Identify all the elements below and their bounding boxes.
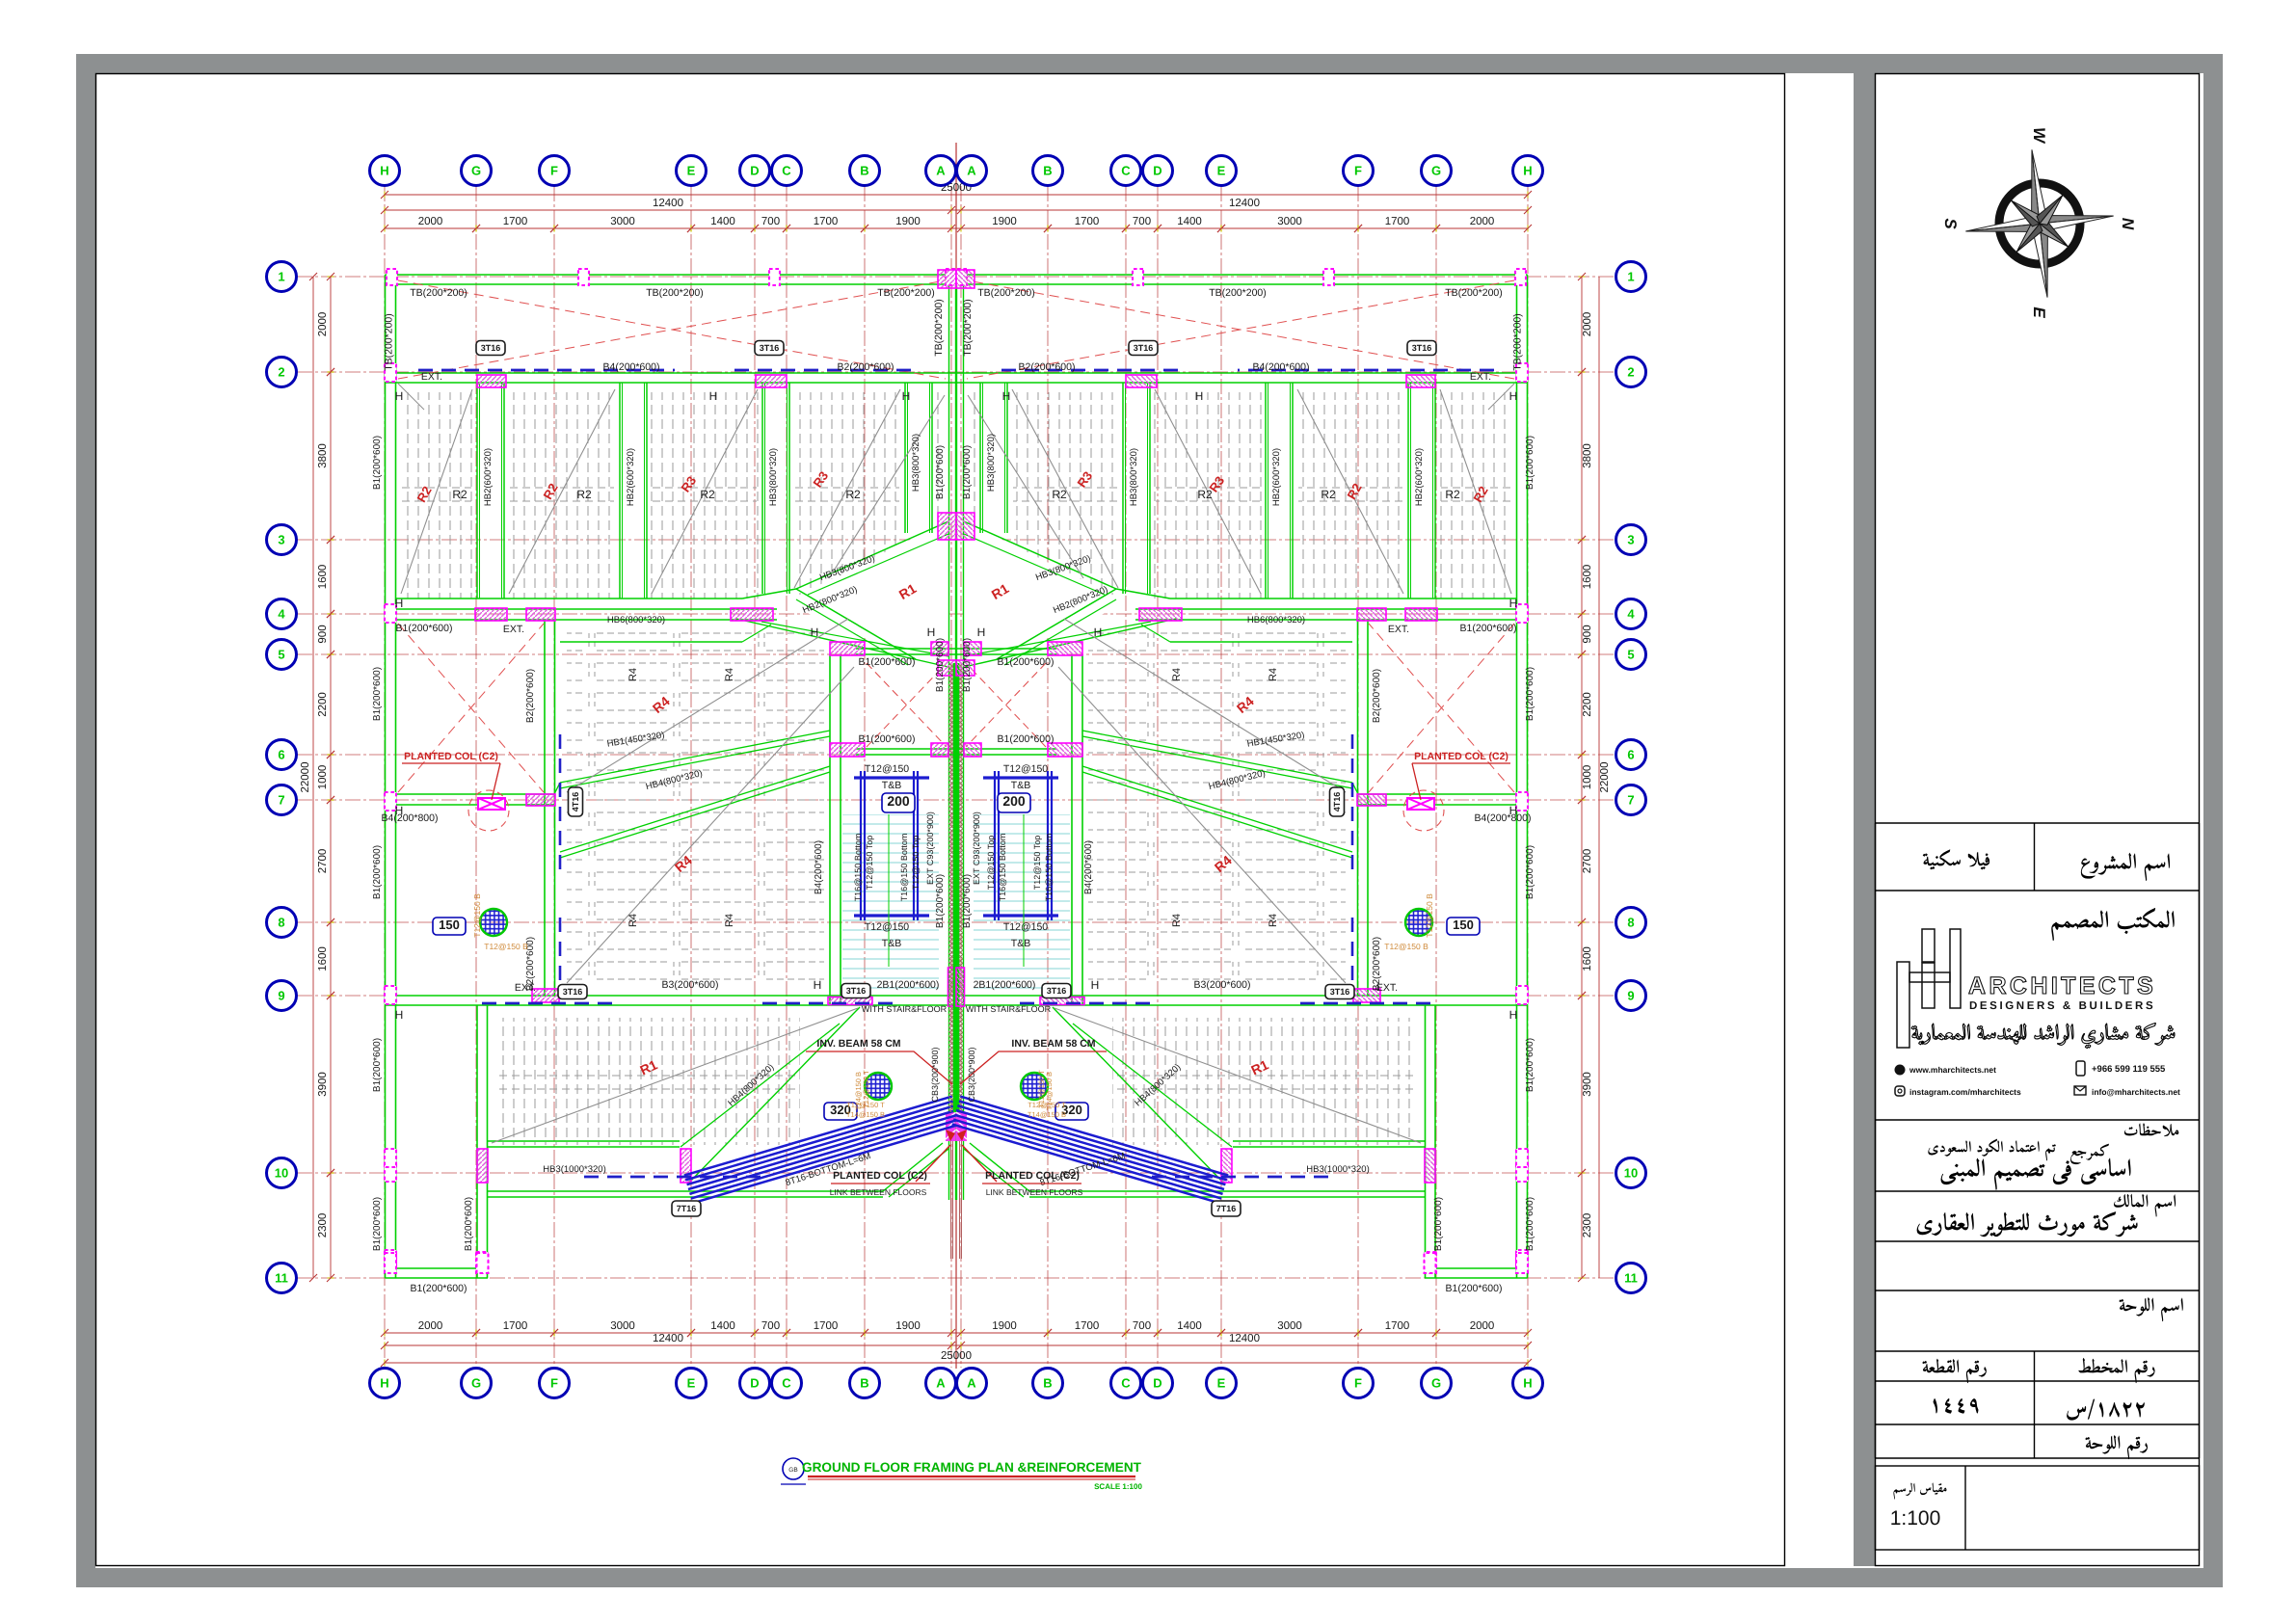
svg-text:B1(200*600): B1(200*600) bbox=[372, 1038, 383, 1092]
svg-text:B2(200*600): B2(200*600) bbox=[838, 361, 894, 373]
svg-text:1600: 1600 bbox=[317, 565, 329, 590]
svg-text:H: H bbox=[395, 804, 404, 817]
svg-text:R4: R4 bbox=[1171, 914, 1183, 927]
svg-text:H: H bbox=[395, 597, 404, 610]
svg-text:EXT.: EXT. bbox=[1376, 982, 1398, 994]
svg-text:3000: 3000 bbox=[610, 216, 635, 227]
svg-text:B1(200*600): B1(200*600) bbox=[1525, 1197, 1535, 1251]
svg-text:1:100: 1:100 bbox=[1890, 1507, 1941, 1530]
svg-text:1900: 1900 bbox=[992, 1320, 1017, 1332]
svg-text:700: 700 bbox=[1133, 216, 1151, 227]
svg-text:T12@150 Top: T12@150 Top bbox=[986, 836, 996, 891]
svg-text:B1(200*600): B1(200*600) bbox=[962, 638, 973, 692]
svg-text:C: C bbox=[782, 1376, 791, 1391]
svg-text:1000: 1000 bbox=[1582, 765, 1593, 790]
svg-text:1600: 1600 bbox=[1582, 946, 1593, 971]
svg-text:E: E bbox=[687, 164, 696, 178]
svg-text:H: H bbox=[1094, 625, 1103, 639]
svg-text:2200: 2200 bbox=[1582, 692, 1593, 717]
svg-text:F: F bbox=[1354, 1376, 1362, 1391]
svg-text:B2(200*600): B2(200*600) bbox=[1019, 361, 1076, 373]
svg-text:B1(200*600): B1(200*600) bbox=[372, 1197, 383, 1251]
svg-text:B2(200*600): B2(200*600) bbox=[525, 669, 536, 723]
svg-text:R4: R4 bbox=[724, 914, 735, 927]
svg-text:2700: 2700 bbox=[1582, 849, 1593, 874]
svg-text:B1(200*600): B1(200*600) bbox=[1460, 623, 1517, 634]
svg-text:C: C bbox=[782, 164, 791, 178]
svg-text:CB3(200*900): CB3(200*900) bbox=[930, 1047, 940, 1102]
svg-text:4T16: 4T16 bbox=[571, 792, 580, 812]
svg-text:1400: 1400 bbox=[1177, 1320, 1202, 1332]
svg-text:22000: 22000 bbox=[1599, 762, 1611, 793]
svg-text:B1(200*600): B1(200*600) bbox=[935, 874, 946, 928]
svg-text:T12@150: T12@150 bbox=[865, 763, 909, 775]
svg-text:700: 700 bbox=[761, 1320, 780, 1332]
svg-text:EXT C93(200*900): EXT C93(200*900) bbox=[925, 811, 935, 885]
svg-text:F: F bbox=[550, 164, 558, 178]
svg-text:B2(200*600): B2(200*600) bbox=[1372, 669, 1382, 723]
svg-text:G: G bbox=[1431, 164, 1441, 178]
svg-text:1700: 1700 bbox=[814, 216, 839, 227]
svg-text:B4(200*600): B4(200*600) bbox=[603, 361, 660, 373]
svg-text:+966 599 119 555: +966 599 119 555 bbox=[2092, 1064, 2166, 1075]
svg-text:2300: 2300 bbox=[1582, 1213, 1593, 1238]
svg-text:B4(200*600): B4(200*600) bbox=[1083, 840, 1094, 894]
svg-text:1700: 1700 bbox=[503, 216, 528, 227]
svg-text:1600: 1600 bbox=[1582, 565, 1593, 590]
svg-text:H: H bbox=[1509, 597, 1518, 610]
svg-text:CB3(200*900): CB3(200*900) bbox=[967, 1047, 976, 1102]
svg-text:DESIGNERS & BUILDERS: DESIGNERS & BUILDERS bbox=[1969, 1000, 2155, 1012]
svg-text:LINK BETWEEN FLOORS: LINK BETWEEN FLOORS bbox=[830, 1187, 927, 1197]
svg-text:H: H bbox=[1002, 389, 1011, 403]
svg-text:HB6(800*320): HB6(800*320) bbox=[607, 615, 665, 625]
svg-text:HB3(800*320): HB3(800*320) bbox=[1129, 448, 1139, 506]
svg-text:D: D bbox=[1153, 1376, 1161, 1391]
svg-text:3T16: 3T16 bbox=[563, 987, 583, 997]
svg-text:2B1(200*600): 2B1(200*600) bbox=[974, 979, 1036, 991]
svg-text:1000: 1000 bbox=[317, 765, 329, 790]
svg-text:B1(200*600): B1(200*600) bbox=[411, 1283, 467, 1294]
svg-text:E: E bbox=[2030, 306, 2048, 318]
svg-text:B1(200*600): B1(200*600) bbox=[464, 1197, 474, 1251]
svg-text:8: 8 bbox=[278, 916, 284, 930]
svg-text:R4: R4 bbox=[1268, 914, 1279, 927]
svg-text:A: A bbox=[936, 164, 946, 178]
svg-text:H: H bbox=[1091, 978, 1100, 992]
svg-text:H: H bbox=[814, 978, 822, 992]
svg-text:H: H bbox=[1509, 1008, 1518, 1022]
svg-text:B4(200*600): B4(200*600) bbox=[1253, 361, 1310, 373]
svg-text:E: E bbox=[1217, 1376, 1226, 1391]
svg-text:TB(200*200): TB(200*200) bbox=[877, 287, 935, 299]
svg-text:150: 150 bbox=[439, 918, 460, 932]
svg-text:R2: R2 bbox=[1321, 488, 1336, 501]
svg-text:B3(200*600): B3(200*600) bbox=[1194, 979, 1251, 991]
svg-text:H: H bbox=[1195, 389, 1204, 403]
svg-text:2200: 2200 bbox=[317, 692, 329, 717]
svg-text:22000: 22000 bbox=[300, 762, 311, 793]
svg-text:1700: 1700 bbox=[814, 1320, 839, 1332]
svg-text:700: 700 bbox=[1133, 1320, 1151, 1332]
svg-text:H: H bbox=[1509, 389, 1518, 403]
svg-text:B1(200*600): B1(200*600) bbox=[859, 656, 916, 668]
svg-text:200: 200 bbox=[887, 793, 910, 809]
svg-text:1900: 1900 bbox=[992, 216, 1017, 227]
svg-text:T12@150 B: T12@150 B bbox=[1384, 942, 1428, 951]
svg-text:TB(200*200): TB(200*200) bbox=[410, 287, 467, 299]
svg-text:TB(200*200): TB(200*200) bbox=[977, 287, 1035, 299]
svg-text:B1(200*600): B1(200*600) bbox=[1525, 845, 1535, 899]
svg-text:S: S bbox=[1941, 218, 1960, 229]
svg-text:1900: 1900 bbox=[895, 1320, 921, 1332]
svg-text:EXT.: EXT. bbox=[1388, 624, 1409, 635]
svg-text:R4: R4 bbox=[627, 668, 639, 681]
svg-text:TB(200*200): TB(200*200) bbox=[1445, 287, 1503, 299]
svg-text:3T16: 3T16 bbox=[1134, 343, 1154, 353]
svg-text:INV. BEAM 58 CM: INV. BEAM 58 CM bbox=[1011, 1038, 1095, 1050]
svg-text:PLANTED COL (C2): PLANTED COL (C2) bbox=[1414, 751, 1508, 762]
svg-text:2000: 2000 bbox=[1582, 312, 1593, 337]
svg-text:2700: 2700 bbox=[317, 849, 329, 874]
svg-text:6: 6 bbox=[278, 748, 284, 762]
svg-text:3000: 3000 bbox=[610, 1320, 635, 1332]
svg-text:9: 9 bbox=[278, 989, 284, 1003]
svg-text:LINK BETWEEN FLOORS: LINK BETWEEN FLOORS bbox=[986, 1187, 1083, 1197]
svg-text:B: B bbox=[860, 164, 868, 178]
svg-text:4: 4 bbox=[278, 607, 285, 622]
svg-text:H: H bbox=[380, 164, 388, 178]
svg-text:EXT.: EXT. bbox=[421, 371, 442, 383]
svg-text:12400: 12400 bbox=[653, 1333, 683, 1344]
svg-text:D: D bbox=[750, 1376, 759, 1391]
svg-text:EXT.: EXT. bbox=[515, 982, 536, 994]
svg-text:3T16: 3T16 bbox=[1412, 343, 1432, 353]
svg-text:B1(200*600): B1(200*600) bbox=[1525, 436, 1535, 490]
svg-text:T12@150 B: T12@150 B bbox=[472, 893, 482, 938]
svg-text:1400: 1400 bbox=[1177, 216, 1202, 227]
svg-text:HB3(1000*320): HB3(1000*320) bbox=[1306, 1164, 1370, 1175]
svg-text:HB3(1000*320): HB3(1000*320) bbox=[543, 1164, 606, 1175]
svg-text:B1(200*600): B1(200*600) bbox=[372, 845, 383, 899]
svg-text:R4: R4 bbox=[627, 914, 639, 927]
svg-text:7: 7 bbox=[278, 793, 284, 808]
svg-text:B3(200*600): B3(200*600) bbox=[662, 979, 719, 991]
svg-text:25000: 25000 bbox=[941, 1350, 972, 1362]
svg-text:T16@150 Bottom: T16@150 Bottom bbox=[899, 834, 909, 902]
svg-text:TB(200*200): TB(200*200) bbox=[384, 313, 395, 371]
svg-text:1: 1 bbox=[1627, 270, 1634, 284]
svg-text:info@mharchitects.net: info@mharchitects.net bbox=[2092, 1087, 2180, 1097]
svg-text:R4: R4 bbox=[724, 668, 735, 681]
svg-text:B1(200*600): B1(200*600) bbox=[998, 733, 1055, 745]
svg-text:10: 10 bbox=[1624, 1166, 1638, 1181]
svg-text:1400: 1400 bbox=[710, 216, 735, 227]
svg-text:12400: 12400 bbox=[653, 198, 683, 209]
svg-text:T&B: T&B bbox=[1011, 780, 1030, 791]
svg-text:200: 200 bbox=[1002, 793, 1026, 809]
svg-text:EXT.: EXT. bbox=[1470, 371, 1491, 383]
svg-text:700: 700 bbox=[761, 216, 780, 227]
svg-text:B1(200*600): B1(200*600) bbox=[1525, 667, 1535, 721]
svg-text:3T16: 3T16 bbox=[481, 343, 501, 353]
svg-text:11: 11 bbox=[275, 1271, 288, 1286]
svg-text:B4(200*800): B4(200*800) bbox=[382, 812, 439, 824]
svg-text:3000: 3000 bbox=[1277, 216, 1302, 227]
svg-text:3T16: 3T16 bbox=[1330, 987, 1350, 997]
svg-text:1700: 1700 bbox=[1385, 1320, 1410, 1332]
svg-text:H: H bbox=[395, 1008, 404, 1022]
svg-text:HB6(800*320): HB6(800*320) bbox=[1247, 615, 1305, 625]
svg-text:7T16: 7T16 bbox=[677, 1204, 697, 1213]
svg-text:3T16: 3T16 bbox=[760, 343, 780, 353]
svg-text:11: 11 bbox=[1624, 1271, 1638, 1286]
svg-text:B: B bbox=[860, 1376, 868, 1391]
svg-text:WITH STAIR&FLOOR: WITH STAIR&FLOOR bbox=[862, 1004, 948, 1014]
svg-text:TB(200*200): TB(200*200) bbox=[962, 299, 974, 357]
svg-text:3T16: 3T16 bbox=[1047, 986, 1067, 996]
svg-text:R2: R2 bbox=[700, 488, 715, 501]
svg-text:D: D bbox=[750, 164, 759, 178]
svg-text:900: 900 bbox=[317, 625, 329, 643]
svg-text:TB(200*200): TB(200*200) bbox=[1512, 313, 1524, 371]
svg-text:2000: 2000 bbox=[1470, 216, 1495, 227]
svg-text:7T16: 7T16 bbox=[1216, 1204, 1237, 1213]
svg-text:C: C bbox=[1121, 164, 1131, 178]
svg-text:B4(200*600): B4(200*600) bbox=[814, 840, 824, 894]
svg-text:R2: R2 bbox=[576, 488, 592, 501]
svg-text:D: D bbox=[1153, 164, 1161, 178]
svg-text:TB(200*200): TB(200*200) bbox=[933, 299, 945, 357]
svg-text:E: E bbox=[1217, 164, 1226, 178]
svg-text:E: E bbox=[687, 1376, 696, 1391]
svg-text:HB3(800*320): HB3(800*320) bbox=[768, 448, 779, 506]
svg-text:1700: 1700 bbox=[1075, 1320, 1100, 1332]
svg-text:B1(200*600): B1(200*600) bbox=[935, 638, 946, 692]
svg-text:H: H bbox=[1509, 804, 1518, 817]
svg-text:H: H bbox=[709, 389, 718, 403]
svg-text:R4: R4 bbox=[1171, 668, 1183, 681]
svg-text:H: H bbox=[1523, 164, 1532, 178]
svg-text:2300: 2300 bbox=[317, 1213, 329, 1238]
svg-text:R2: R2 bbox=[1197, 488, 1213, 501]
svg-text:PLANTED COL (C2): PLANTED COL (C2) bbox=[833, 1170, 927, 1182]
svg-text:ARCHITECTS: ARCHITECTS bbox=[1968, 972, 2156, 999]
svg-text:T12@150: T12@150 bbox=[865, 921, 909, 933]
svg-text:B1(200*600): B1(200*600) bbox=[1525, 1038, 1535, 1092]
svg-text:T&B: T&B bbox=[882, 780, 901, 791]
svg-text:HB2(600*320): HB2(600*320) bbox=[483, 448, 494, 506]
svg-text:12400: 12400 bbox=[1229, 198, 1260, 209]
svg-text:6: 6 bbox=[1627, 748, 1634, 762]
svg-text:instagram.com/mharchitects: instagram.com/mharchitects bbox=[1909, 1087, 2021, 1097]
svg-text:GROUND FLOOR FRAMING PLAN: GROUND FLOOR FRAMING PLAN &REINFORCEMENT bbox=[802, 1460, 1142, 1475]
svg-text:HB2(600*320): HB2(600*320) bbox=[1271, 448, 1282, 506]
svg-text:H: H bbox=[811, 625, 819, 639]
svg-text:EXT.: EXT. bbox=[503, 624, 524, 635]
svg-text:2000: 2000 bbox=[317, 312, 329, 337]
svg-text:1700: 1700 bbox=[1385, 216, 1410, 227]
svg-text:900: 900 bbox=[1582, 625, 1593, 643]
svg-text:R2: R2 bbox=[452, 488, 467, 501]
svg-text:G: G bbox=[471, 1376, 481, 1391]
svg-text:HB3(800*320): HB3(800*320) bbox=[911, 434, 921, 492]
svg-text:3: 3 bbox=[278, 533, 284, 547]
svg-text:B1(200*600): B1(200*600) bbox=[1433, 1197, 1444, 1251]
svg-text:5: 5 bbox=[1627, 648, 1634, 662]
svg-text:A: A bbox=[967, 164, 976, 178]
svg-text:12400: 12400 bbox=[1229, 1333, 1260, 1344]
svg-text:4: 4 bbox=[1627, 607, 1635, 622]
svg-text:H: H bbox=[380, 1376, 388, 1391]
svg-text:1700: 1700 bbox=[1075, 216, 1100, 227]
svg-text:TB(200*200): TB(200*200) bbox=[1209, 287, 1267, 299]
svg-text:T12@150 B: T12@150 B bbox=[484, 942, 528, 951]
svg-text:B1(200*600): B1(200*600) bbox=[998, 656, 1055, 668]
svg-text:H: H bbox=[902, 389, 911, 403]
svg-text:2000: 2000 bbox=[418, 216, 443, 227]
svg-text:F: F bbox=[550, 1376, 558, 1391]
svg-text:B: B bbox=[1043, 1376, 1052, 1391]
svg-text:B1(200*600): B1(200*600) bbox=[859, 733, 916, 745]
svg-text:T14@150 B: T14@150 B bbox=[1028, 1110, 1066, 1119]
svg-text:www.mharchitects.net: www.mharchitects.net bbox=[1909, 1065, 1996, 1075]
svg-text:H: H bbox=[1523, 1376, 1532, 1391]
svg-text:INV. BEAM 58 CM: INV. BEAM 58 CM bbox=[816, 1038, 900, 1050]
svg-text:2000: 2000 bbox=[418, 1320, 443, 1332]
svg-text:B: B bbox=[1043, 164, 1052, 178]
svg-text:T12@150 B: T12@150 B bbox=[1425, 893, 1434, 938]
svg-text:4T16: 4T16 bbox=[1332, 792, 1342, 812]
svg-text:2: 2 bbox=[278, 365, 284, 380]
svg-text:T12@150 T: T12@150 T bbox=[846, 1101, 885, 1109]
svg-text:B1(200*600): B1(200*600) bbox=[962, 445, 973, 499]
svg-text:B1(200*600): B1(200*600) bbox=[396, 623, 453, 634]
svg-text:TB(200*200): TB(200*200) bbox=[646, 287, 704, 299]
svg-text:WITH STAIR&FLOOR: WITH STAIR&FLOOR bbox=[966, 1004, 1052, 1014]
svg-text:3800: 3800 bbox=[317, 443, 329, 468]
svg-text:T16@150 Bottom: T16@150 Bottom bbox=[998, 834, 1007, 902]
svg-text:3000: 3000 bbox=[1277, 1320, 1302, 1332]
svg-text:H: H bbox=[927, 625, 936, 639]
svg-text:1700: 1700 bbox=[503, 1320, 528, 1332]
svg-text:PLANTED COL (C2): PLANTED COL (C2) bbox=[404, 751, 498, 762]
svg-text:B1(200*600): B1(200*600) bbox=[1446, 1283, 1503, 1294]
svg-text:HB2(600*320): HB2(600*320) bbox=[626, 448, 636, 506]
svg-text:T12@150 T: T12@150 T bbox=[1028, 1101, 1066, 1109]
svg-text:T16@150 Bottom: T16@150 Bottom bbox=[853, 834, 863, 902]
svg-text:T12@150 Top: T12@150 Top bbox=[1032, 836, 1042, 891]
svg-text:A: A bbox=[967, 1376, 976, 1391]
svg-text:1900: 1900 bbox=[895, 216, 921, 227]
svg-text:5: 5 bbox=[278, 648, 284, 662]
svg-text:B1(200*600): B1(200*600) bbox=[372, 667, 383, 721]
svg-text:1600: 1600 bbox=[317, 946, 329, 971]
svg-text:T12@150 Top: T12@150 Top bbox=[865, 836, 874, 891]
svg-text:1400: 1400 bbox=[710, 1320, 735, 1332]
svg-text:B1(200*600): B1(200*600) bbox=[935, 445, 946, 499]
svg-text:8: 8 bbox=[1627, 916, 1634, 930]
svg-text:3800: 3800 bbox=[1582, 443, 1593, 468]
svg-text:T12@150: T12@150 bbox=[1003, 763, 1048, 775]
svg-text:9: 9 bbox=[1627, 989, 1634, 1003]
svg-text:PLANTED COL (C2): PLANTED COL (C2) bbox=[985, 1170, 1080, 1182]
svg-text:R4: R4 bbox=[1268, 668, 1279, 681]
svg-text:R2: R2 bbox=[845, 488, 861, 501]
svg-text:B4(200*800): B4(200*800) bbox=[1475, 812, 1532, 824]
svg-text:F: F bbox=[1354, 164, 1362, 178]
svg-text:10: 10 bbox=[275, 1166, 288, 1181]
svg-text:N: N bbox=[2119, 218, 2137, 230]
svg-text:2B1(200*600): 2B1(200*600) bbox=[877, 979, 940, 991]
svg-text:H: H bbox=[395, 389, 404, 403]
svg-text:R2: R2 bbox=[1052, 488, 1067, 501]
svg-text:R2: R2 bbox=[1445, 488, 1460, 501]
svg-text:W: W bbox=[2030, 127, 2048, 145]
svg-text:3900: 3900 bbox=[317, 1072, 329, 1097]
svg-text:2000: 2000 bbox=[1470, 1320, 1495, 1332]
svg-text:3: 3 bbox=[1627, 533, 1634, 547]
svg-text:B1(200*600): B1(200*600) bbox=[372, 436, 383, 490]
svg-text:G: G bbox=[1431, 1376, 1441, 1391]
svg-text:H: H bbox=[977, 625, 986, 639]
svg-text:SCALE 1:100: SCALE 1:100 bbox=[1094, 1482, 1142, 1491]
svg-text:T12@150: T12@150 bbox=[1003, 921, 1048, 933]
svg-text:HB2(600*320): HB2(600*320) bbox=[1414, 448, 1425, 506]
svg-text:T12@150 Top: T12@150 Top bbox=[911, 836, 921, 891]
svg-text:T16@150 Bottom: T16@150 Bottom bbox=[1044, 834, 1054, 902]
svg-text:GB: GB bbox=[788, 1467, 797, 1474]
svg-text:G: G bbox=[471, 164, 481, 178]
svg-text:1: 1 bbox=[278, 270, 284, 284]
svg-text:HB3(800*320): HB3(800*320) bbox=[986, 434, 997, 492]
svg-text:T&B: T&B bbox=[882, 938, 901, 949]
svg-text:C: C bbox=[1121, 1376, 1131, 1391]
svg-text:150: 150 bbox=[1453, 918, 1474, 932]
svg-text:EXT C93(200*900): EXT C93(200*900) bbox=[972, 811, 981, 885]
svg-text:T&B: T&B bbox=[1011, 938, 1030, 949]
svg-text:T14@150 B: T14@150 B bbox=[846, 1110, 885, 1119]
svg-text:3900: 3900 bbox=[1582, 1072, 1593, 1097]
svg-text:7: 7 bbox=[1627, 793, 1634, 808]
svg-text:2: 2 bbox=[1627, 365, 1634, 380]
svg-text:3T16: 3T16 bbox=[846, 986, 867, 996]
svg-text:A: A bbox=[936, 1376, 946, 1391]
